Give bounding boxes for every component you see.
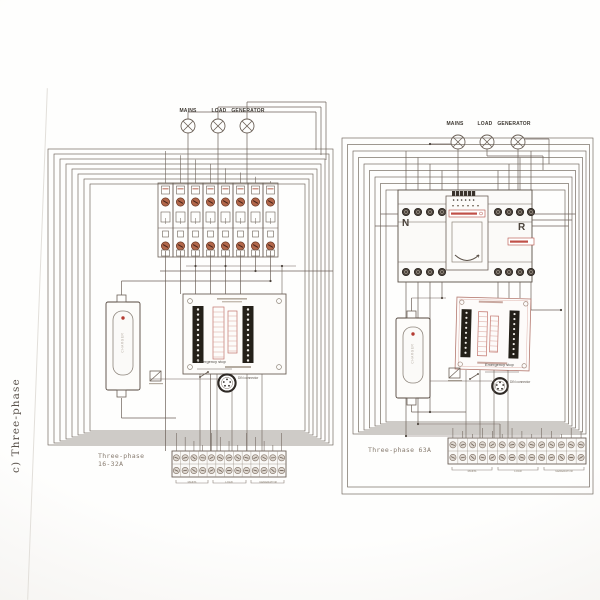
left-charger-label: CHARGER bbox=[121, 325, 124, 361]
left-indicator-lamps bbox=[181, 102, 326, 183]
terminal-strip bbox=[172, 451, 286, 477]
ats-transfer-switch bbox=[398, 190, 535, 282]
left-terminal-group-mains: MAINS bbox=[178, 481, 206, 484]
indicator-lamp-icon bbox=[181, 119, 195, 133]
indicator-lamp-icon bbox=[451, 135, 465, 149]
right-generator-label: GENERATOR bbox=[494, 122, 534, 127]
left-emergency-stop-label: Emergency stop bbox=[197, 361, 226, 365]
indicator-lamp-icon bbox=[480, 135, 494, 149]
right-emergency-stop-label: Emergency stop bbox=[485, 364, 514, 368]
right-caption: Three-phase 63A bbox=[368, 446, 431, 454]
indicator-lamp-icon bbox=[240, 119, 254, 133]
right-mains-label: MAINS bbox=[440, 122, 470, 127]
right-controller-pcb bbox=[455, 297, 531, 371]
din-connector-icon bbox=[492, 377, 508, 394]
right-terminal-group-generator: GENERATOR bbox=[546, 470, 582, 473]
right-diagram bbox=[342, 135, 593, 494]
right-terminal-group-mains: MAINS bbox=[458, 470, 486, 473]
right-fuse bbox=[448, 368, 462, 381]
right-din-connector-label: DIN connector bbox=[510, 381, 532, 385]
left-diagram bbox=[48, 102, 333, 483]
left-contactor-1 bbox=[158, 183, 218, 257]
right-charger-label: CHARGER bbox=[411, 336, 414, 372]
scanned-wiring-page: c) Three-phase MAINS LOAD GENERATOR Thre… bbox=[0, 0, 600, 600]
din-connector-icon bbox=[218, 374, 235, 392]
left-caption-line1: Three-phase bbox=[98, 452, 144, 460]
indicator-lamp-icon bbox=[211, 119, 225, 133]
left-fuse bbox=[149, 371, 163, 384]
left-terminal-group-load: LOAD bbox=[215, 481, 243, 484]
terminal-strip bbox=[448, 438, 586, 464]
right-terminal-group-load: LOAD bbox=[504, 470, 532, 473]
ats-r-label: R bbox=[518, 223, 525, 233]
left-generator-label: GENERATOR bbox=[228, 109, 268, 114]
ats-n-label: N bbox=[402, 219, 409, 229]
left-contactor-2 bbox=[218, 183, 278, 257]
indicator-lamp-icon bbox=[511, 135, 525, 149]
wiring-diagram-svg bbox=[0, 0, 600, 600]
left-caption-line2: 16-32A bbox=[98, 460, 123, 468]
left-terminal-group-generator: GENERATOR bbox=[253, 481, 283, 484]
left-mains-label: MAINS bbox=[173, 109, 203, 114]
left-din-connector-label: DIN connector bbox=[238, 377, 260, 381]
side-section-label: c) Three-phase bbox=[11, 378, 22, 473]
